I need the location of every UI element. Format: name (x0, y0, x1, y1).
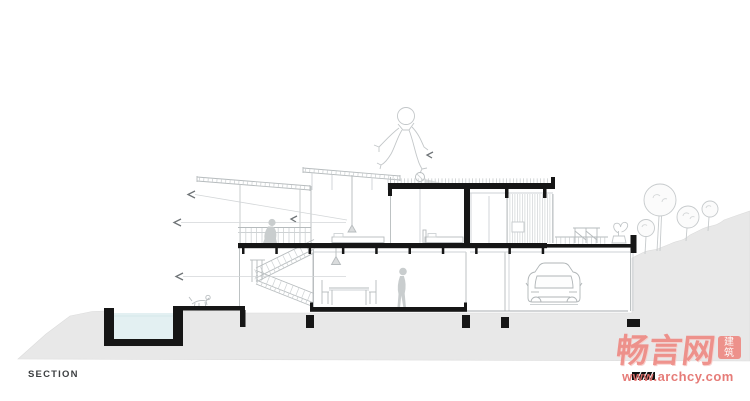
watermark-seal: 建 筑 (718, 336, 741, 359)
terrace-pergola (555, 228, 608, 243)
staircase (250, 240, 314, 308)
window (512, 222, 524, 232)
screenshot-root: SECTION 畅言网 建 筑 www.archcy.com (0, 0, 750, 401)
dining-table-and-chairs (322, 280, 376, 305)
canopy-roof-center (303, 167, 400, 181)
car-in-garage (526, 263, 582, 305)
watermark-logo-text: 畅言网 (613, 334, 716, 368)
pendant-lamp-deck (348, 175, 356, 232)
terrace-slab (547, 244, 633, 248)
cut-wall (464, 186, 470, 247)
terrace-end-post (631, 235, 637, 253)
standing-person (398, 268, 407, 307)
bed (423, 230, 463, 243)
potted-plant (612, 222, 628, 243)
wood-siding-wall (507, 194, 553, 243)
watermark-seal-char-top: 建 (724, 337, 734, 348)
watermark-seal-char-bottom: 筑 (724, 348, 734, 359)
ground-floor-slab (310, 303, 467, 312)
roof-sketch-figure (374, 108, 428, 174)
watermark: 畅言网 建 筑 www.archcy.com (606, 334, 750, 384)
section-label: SECTION (28, 369, 79, 380)
breeze-arrows (174, 152, 433, 280)
ground-terrace-slab (183, 306, 245, 311)
upper-floor-slab (238, 235, 637, 253)
watermark-url: www.archcy.com (606, 369, 750, 384)
daybed (332, 234, 384, 243)
pendant-lamp-living (332, 248, 341, 265)
